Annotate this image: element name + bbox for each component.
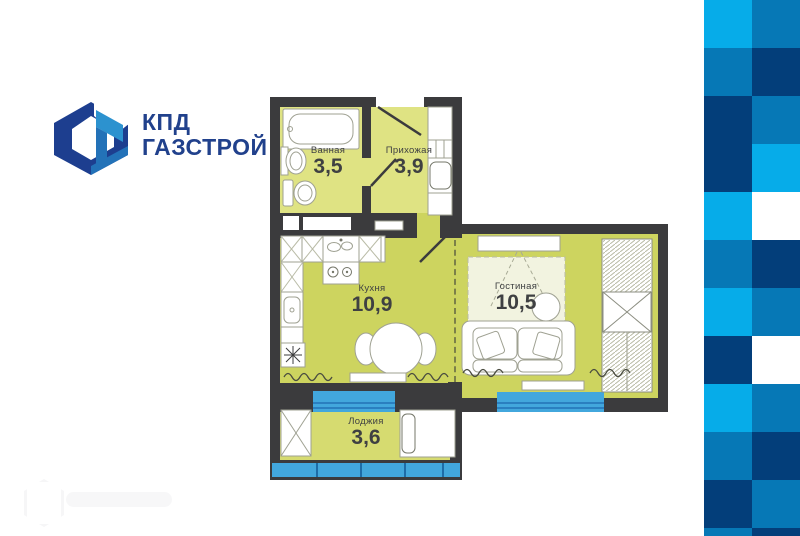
mosaic-cell xyxy=(752,192,800,240)
brand-mosaic xyxy=(0,0,800,536)
mosaic-cell xyxy=(752,0,800,48)
mosaic-cell xyxy=(704,336,752,384)
watermark-text xyxy=(66,492,172,507)
mosaic-cell xyxy=(704,96,752,144)
mosaic-cell xyxy=(704,432,752,480)
mosaic-cell xyxy=(752,96,800,144)
mosaic-cell xyxy=(752,480,800,528)
screenshot-stage: КПД ГАЗСТРОЙ xyxy=(0,0,800,536)
mosaic-cell xyxy=(704,0,752,48)
mosaic-cell xyxy=(752,528,800,536)
mosaic-cell xyxy=(752,336,800,384)
mosaic-cell xyxy=(752,432,800,480)
mosaic-cell xyxy=(704,144,752,192)
mosaic-cell xyxy=(752,48,800,96)
mosaic-cell xyxy=(704,240,752,288)
mosaic-cell xyxy=(752,384,800,432)
mosaic-cell xyxy=(704,480,752,528)
mosaic-cell xyxy=(704,384,752,432)
mosaic-cell xyxy=(752,288,800,336)
mosaic-cell xyxy=(752,240,800,288)
mosaic-cell xyxy=(704,528,752,536)
mosaic-cell xyxy=(704,48,752,96)
mosaic-cell xyxy=(704,288,752,336)
mosaic-cell xyxy=(704,192,752,240)
mosaic-cell xyxy=(752,144,800,192)
